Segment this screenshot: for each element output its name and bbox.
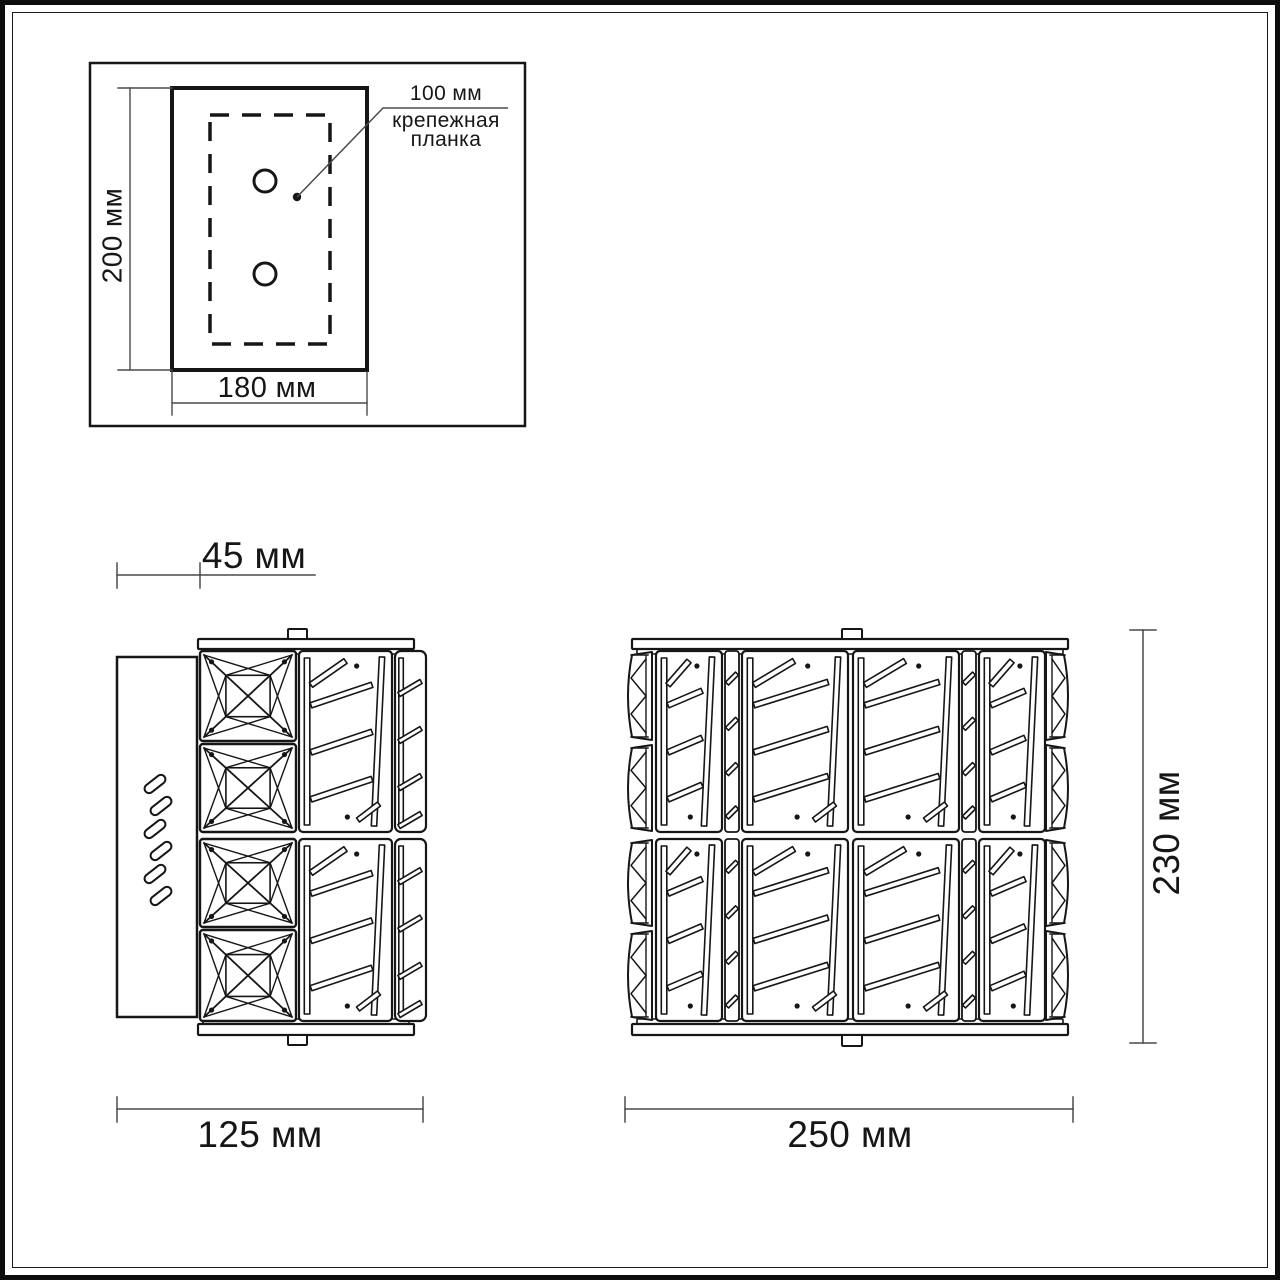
sconce-side-view xyxy=(117,629,426,1045)
side-width-dimension-label: 125 мм xyxy=(175,1116,345,1154)
plate-height-dimension-label: 200 мм xyxy=(98,151,127,321)
front-height-dimension-label: 230 мм xyxy=(1148,748,1186,918)
sconce-front-view xyxy=(628,629,1068,1046)
drawing-sheet: 200 мм 180 мм 100 мм крепежная планка 45… xyxy=(0,0,1280,1280)
callout-name-label: крепежная планка xyxy=(351,111,541,149)
callout-value-label: 100 мм xyxy=(361,84,531,103)
technical-drawing-svg xyxy=(5,5,1280,1280)
plate-width-dimension-label: 180 мм xyxy=(182,373,352,403)
front-width-dimension-label: 250 мм xyxy=(765,1116,935,1154)
callout-name-line2: планка xyxy=(351,130,541,149)
side-depth-dimension-label: 45 мм xyxy=(169,537,339,575)
